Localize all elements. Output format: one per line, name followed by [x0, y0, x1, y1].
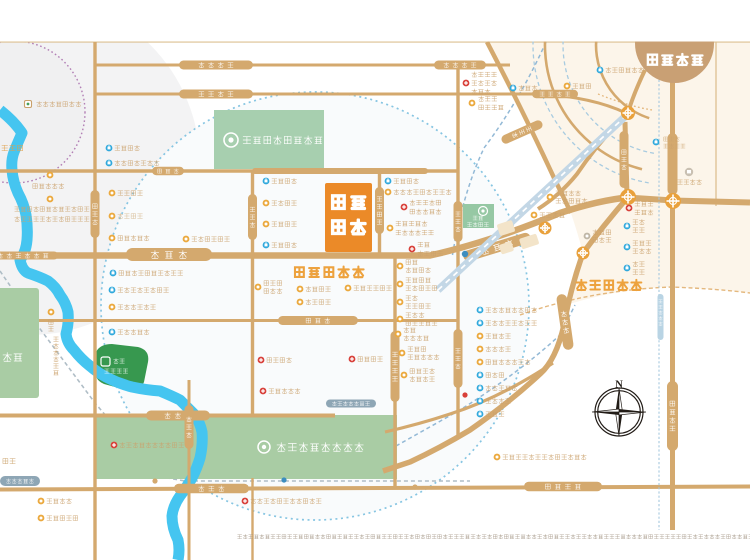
- svg-text:N: N: [615, 380, 623, 391]
